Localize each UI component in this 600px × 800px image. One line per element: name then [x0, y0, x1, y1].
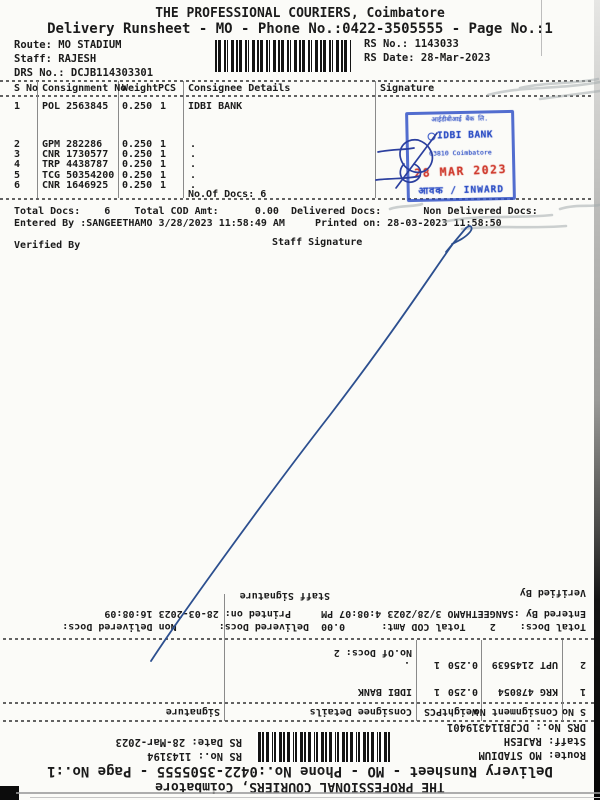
col-sno: S No — [14, 83, 38, 94]
drs-no-label: DRS No.: DCJB114303301 — [14, 67, 153, 79]
col-consignee: Consignee Details — [310, 706, 412, 717]
col-pcs: PCS — [424, 706, 442, 717]
cell-consignment: POL 2563845 — [42, 101, 108, 112]
col-sno: S No — [562, 706, 586, 717]
cell-weight: 0.250 — [448, 659, 478, 670]
cell-sno: 1 — [14, 101, 20, 112]
scan-line-artifact — [541, 0, 542, 56]
stamp-date: 28 MAR 2023 — [414, 163, 507, 179]
rs-date-label: RS Date: 28-Mar-2023 — [116, 736, 242, 748]
cell-consignment: CNR 1646925 — [42, 180, 108, 191]
cell-weight: 0.250 — [122, 159, 152, 170]
cell-pcs: 1 — [434, 686, 440, 697]
col-pcs: PCS — [158, 83, 176, 94]
stamp-bank-name: IDBI BANK — [437, 131, 493, 142]
totals-line: Total Docs: 2 Total COD Amt: 0.00 Delive… — [62, 621, 586, 632]
cell-sno: 4 — [14, 159, 20, 170]
cell-pcs: 1 — [160, 159, 166, 170]
cell-sno: 2 — [580, 659, 586, 670]
staff-signature-label: Staff Signature — [240, 590, 330, 601]
rs-no-label: RS No.: 1143194 — [147, 750, 242, 762]
paper-edge-line — [16, 792, 600, 794]
table-header-underline — [0, 95, 600, 97]
cell-sno: 6 — [14, 180, 20, 191]
table-border-top — [0, 80, 600, 82]
col-weight: Weight — [442, 706, 478, 717]
table-header-row: S No Consignment No Weight PCS Consignee… — [0, 706, 600, 717]
col-weight: Weight — [122, 83, 158, 94]
drs-no-label: DRS No.: DCJB114319401 — [447, 721, 586, 733]
table-row: 1 KRG 478054 0.250 1 IDBI BANK — [0, 686, 600, 697]
cell-pcs: 1 — [434, 659, 440, 670]
totals-line: Total Docs: 6 Total COD Amt: 0.00 Delive… — [14, 206, 538, 217]
cell-consignment: KRG 478054 — [498, 686, 558, 697]
col-signature: Signature — [380, 83, 434, 94]
stamp-branch: 03810 Coimbatore — [429, 149, 492, 157]
route-label: Route: MO STADIUM — [14, 39, 121, 51]
verified-by-label: Verified By — [520, 587, 586, 598]
runsheet-subtitle: Delivery Runsheet - MO - Phone No.:0422-… — [0, 21, 600, 37]
idbi-inward-stamp: आईडीबीआई बैंक लि. IDBI BANK 03810 Coimba… — [405, 110, 516, 202]
cell-consignment: TRP 4438787 — [42, 159, 108, 170]
idbi-logo-icon — [427, 133, 435, 141]
cell-pcs: 1 — [160, 180, 166, 191]
staff-signature-label: Staff Signature — [272, 237, 362, 248]
rs-date-label: RS Date: 28-Mar-2023 — [364, 52, 490, 64]
cell-pcs: 1 — [160, 101, 166, 112]
runsheet-subtitle: Delivery Runsheet - MO - Phone No.:0422-… — [0, 763, 600, 779]
stamp-inward-text: आवक / INWARD — [418, 184, 504, 197]
cell-weight: 0.250 — [122, 101, 152, 112]
table-row: 2 UPT 2145639 0.250 1 . — [0, 659, 600, 670]
table-header-row: S No Consignment No Weight PCS Consignee… — [0, 83, 600, 94]
cell-weight: 0.250 — [448, 686, 478, 697]
col-consignee: Consignee Details — [188, 83, 290, 94]
col-consignment: Consignment No — [474, 706, 558, 717]
cell-consignment: UPT 2145639 — [492, 659, 558, 670]
entered-line: Entered By :SANGEETHAMO 3/28/2023 11:58:… — [14, 218, 502, 229]
staff-label: Staff: RAJESH — [504, 735, 586, 747]
scan-edge-right — [594, 0, 600, 800]
paper-edge-line-faint — [30, 797, 600, 798]
cell-sno: 1 — [580, 686, 586, 697]
route-label: Route: MO STADIUM — [479, 749, 586, 761]
scanned-delivery-runsheet: THE PROFESSIONAL COURIERS, Coimbatore De… — [0, 0, 600, 800]
table-border-top — [0, 720, 600, 722]
col-signature: Signature — [166, 706, 220, 717]
cell-consignee: . — [404, 659, 410, 670]
no-of-docs: No.Of Docs: 6 — [188, 189, 266, 200]
barcode-image — [256, 732, 390, 762]
cell-consignee: IDBI BANK — [188, 101, 242, 112]
staff-label: Staff: RAJESH — [14, 53, 96, 65]
table-header-underline — [0, 702, 600, 704]
table-border-bottom — [0, 638, 600, 640]
courier-title: THE PROFESSIONAL COURIERS, Coimbatore — [0, 6, 600, 21]
rs-no-label: RS No.: 1143033 — [364, 38, 459, 50]
runsheet-bottom-upside-down: THE PROFESSIONAL COURIERS, Coimbatore De… — [0, 550, 600, 800]
barcode-image — [215, 40, 351, 72]
stamp-hindi-line: आईडीबीआई बैंक लि. — [431, 115, 488, 123]
verified-by-label: Verified By — [14, 240, 80, 251]
cell-consignee: . — [190, 159, 196, 170]
no-of-docs: No.Of Docs: 2 — [334, 647, 412, 658]
col-consignment: Consignment No — [42, 83, 126, 94]
entered-line: Entered By :SANGEETHAMO 3/28/2023 4:08:0… — [104, 608, 586, 619]
cell-weight: 0.250 — [122, 180, 152, 191]
cell-consignee: IDBI BANK — [358, 686, 412, 697]
